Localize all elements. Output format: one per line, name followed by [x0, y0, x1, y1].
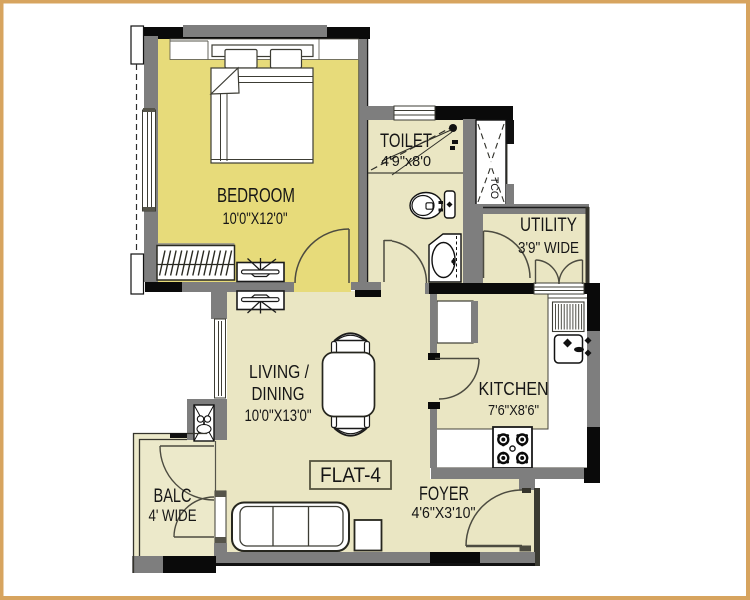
svg-text:FOYER: FOYER — [419, 484, 469, 505]
svg-text:FLAT-4: FLAT-4 — [320, 464, 381, 487]
svg-text:UTILITY: UTILITY — [520, 215, 577, 236]
svg-text:10'0"X13'0": 10'0"X13'0" — [245, 406, 312, 425]
svg-text:BALC: BALC — [154, 486, 192, 507]
svg-text:TCO: TCO — [488, 177, 500, 199]
svg-text:LIVING /: LIVING / — [249, 361, 310, 382]
svg-text:DINING: DINING — [252, 383, 305, 404]
svg-text:4'9"x8'0: 4'9"x8'0 — [381, 153, 431, 170]
svg-text:4'6"X3'10": 4'6"X3'10" — [412, 505, 476, 522]
svg-text:3'9" WIDE: 3'9" WIDE — [518, 240, 579, 257]
svg-text:BEDROOM: BEDROOM — [217, 185, 295, 207]
svg-text:4' WIDE: 4' WIDE — [149, 506, 197, 525]
svg-text:KITCHEN: KITCHEN — [479, 379, 549, 399]
svg-text:10'0"X12'0": 10'0"X12'0" — [223, 209, 288, 228]
svg-text:TOILET: TOILET — [380, 131, 432, 152]
svg-text:7'6"X8'6": 7'6"X8'6" — [488, 402, 539, 419]
